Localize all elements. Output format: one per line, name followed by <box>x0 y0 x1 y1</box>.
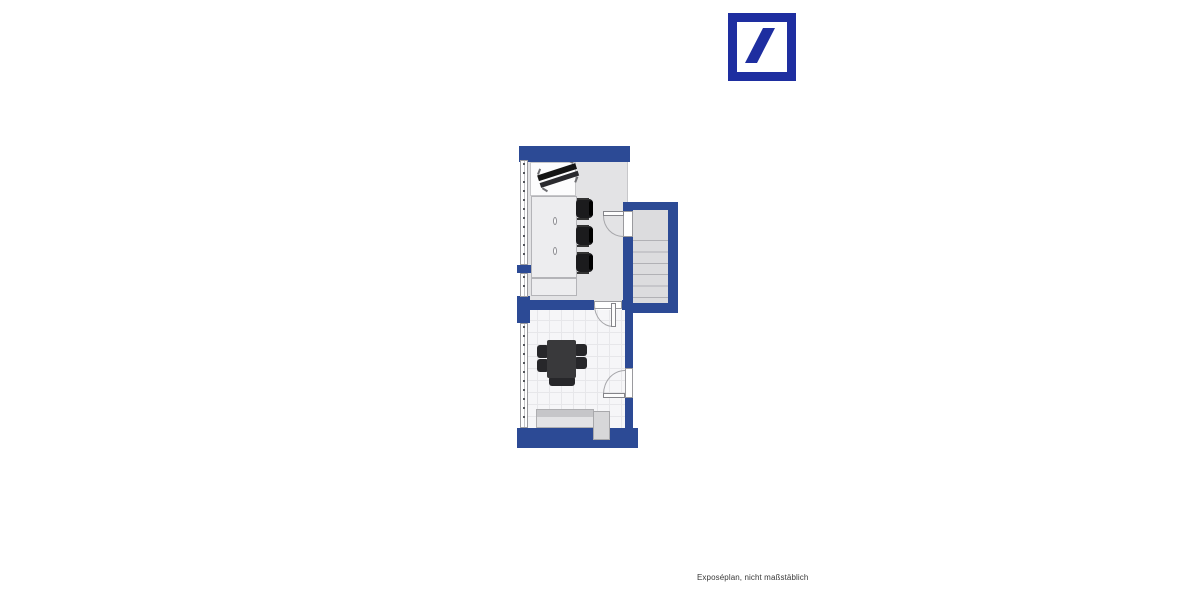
stairwell-wall-left-b <box>623 237 633 303</box>
window-upper-left-a <box>520 160 528 265</box>
wall-right-lower-b <box>625 397 633 428</box>
deutsche-bank-logo-svg <box>728 13 796 81</box>
stairwell-wall-right <box>668 202 678 313</box>
stair-steps <box>633 240 668 298</box>
chair-leg <box>542 187 548 192</box>
stairwell-wall-bottom <box>633 303 678 313</box>
wall-top-upper <box>519 146 630 162</box>
office-chair <box>576 253 593 272</box>
office-chair <box>576 226 593 245</box>
wall-right-lower-a <box>625 310 633 368</box>
wall-bottom-lower <box>517 428 638 448</box>
cabinet-handle <box>553 247 557 255</box>
door-leaf-divider <box>611 303 616 327</box>
meeting-table <box>547 340 576 378</box>
stairwell-wall-left-a <box>623 202 633 211</box>
door-opening-lower-right <box>625 368 633 398</box>
counter-block <box>593 411 610 440</box>
cabinet-handle <box>553 217 557 225</box>
door-leaf-lower-right <box>603 393 625 398</box>
page: { "page": {"background": "#FFFFFF"}, "lo… <box>0 0 1200 600</box>
credit-text: Exposéplan, nicht maßstäblich <box>697 573 808 582</box>
deutsche-bank-logo <box>728 13 796 81</box>
door-opening-stairwell <box>623 211 633 237</box>
wall-divider-left <box>517 300 594 310</box>
sideboard <box>536 409 594 428</box>
chair-leg <box>574 176 578 182</box>
floorplan <box>0 0 1200 600</box>
cabinet-low <box>531 278 577 296</box>
office-chair <box>576 199 593 218</box>
window-lower-left <box>520 323 528 428</box>
cabinet-tall <box>531 196 577 278</box>
wall-pier-left <box>517 265 531 273</box>
logo-slash-icon <box>745 28 775 63</box>
door-leaf-stairwell <box>603 211 624 216</box>
window-upper-left-b <box>520 273 528 297</box>
